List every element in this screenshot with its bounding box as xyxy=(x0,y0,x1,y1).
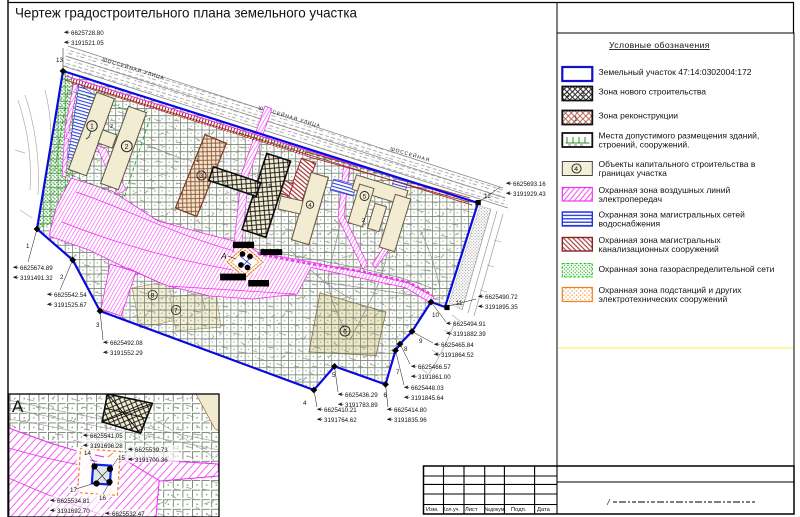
svg-text:1: 1 xyxy=(196,158,199,164)
svg-text:электропередач: электропередач xyxy=(599,194,663,204)
svg-text:1: 1 xyxy=(574,116,578,123)
svg-text:17: 17 xyxy=(70,487,77,494)
svg-text:16: 16 xyxy=(99,495,106,502)
svg-text:3191692.70: 3191692.70 xyxy=(57,508,90,515)
svg-text:6625494.91: 6625494.91 xyxy=(453,321,486,328)
svg-text:Условные обозначения: Условные обозначения xyxy=(609,40,710,50)
svg-text:Земельный участок 47:14:030200: Земельный участок 47:14:0302004:172 xyxy=(599,67,752,77)
svg-text:4: 4 xyxy=(308,203,311,209)
svg-text:3: 3 xyxy=(200,173,204,180)
svg-text:3191525.67: 3191525.67 xyxy=(54,302,87,309)
svg-text:Лист: Лист xyxy=(465,507,478,513)
svg-text:6625414.80: 6625414.80 xyxy=(394,407,427,414)
svg-text:3191845.64: 3191845.64 xyxy=(411,395,444,402)
svg-text:6625534.81: 6625534.81 xyxy=(57,498,90,505)
svg-text:2: 2 xyxy=(566,92,570,99)
svg-text:6625674.89: 6625674.89 xyxy=(20,265,53,272)
svg-text:10: 10 xyxy=(432,312,439,319)
svg-text:11: 11 xyxy=(456,300,463,307)
svg-text:2: 2 xyxy=(362,218,365,224)
svg-text:8: 8 xyxy=(151,293,155,300)
svg-text:2: 2 xyxy=(223,181,226,187)
svg-text:канализационных сооружений: канализационных сооружений xyxy=(599,244,719,254)
svg-text:А: А xyxy=(12,397,24,416)
svg-text:6625490.72: 6625490.72 xyxy=(485,294,518,301)
svg-text:3191764.62: 3191764.62 xyxy=(324,417,357,424)
svg-text:6625448.03: 6625448.03 xyxy=(411,385,444,392)
svg-text:12: 12 xyxy=(484,193,491,200)
svg-text:3191521.05: 3191521.05 xyxy=(71,40,104,47)
svg-text:строений, сооружений.: строений, сооружений. xyxy=(599,140,690,150)
svg-text:6625541.05: 6625541.05 xyxy=(90,433,123,440)
svg-text:3191696.28: 3191696.28 xyxy=(90,443,123,450)
svg-text:14: 14 xyxy=(84,450,91,457)
svg-text:6625542.54: 6625542.54 xyxy=(54,292,87,299)
svg-text:6: 6 xyxy=(384,392,388,399)
svg-text:3191864.52: 3191864.52 xyxy=(441,352,474,359)
svg-text:Изм.: Изм. xyxy=(426,507,439,513)
svg-text:№докум.: №докум. xyxy=(485,507,506,513)
svg-text:Дата: Дата xyxy=(537,507,551,513)
svg-text:7: 7 xyxy=(174,308,178,315)
svg-text:3191929.43: 3191929.43 xyxy=(513,191,546,198)
svg-text:4: 4 xyxy=(574,166,578,173)
svg-text:15: 15 xyxy=(118,455,125,462)
svg-text:6625436.29: 6625436.29 xyxy=(345,392,378,399)
svg-text:9: 9 xyxy=(419,338,423,345)
svg-text:Зона нового строительства: Зона нового строительства xyxy=(599,87,707,97)
svg-text:4: 4 xyxy=(303,400,307,407)
svg-text:2: 2 xyxy=(110,124,113,130)
svg-text:2: 2 xyxy=(60,274,64,281)
svg-text:Кол.уч.: Кол.уч. xyxy=(443,507,460,513)
svg-text:электротехнических сооружений: электротехнических сооружений xyxy=(599,294,728,304)
svg-text:Подп.: Подп. xyxy=(511,507,527,513)
svg-text:3: 3 xyxy=(581,91,585,98)
svg-text:6625410.21: 6625410.21 xyxy=(324,407,357,414)
svg-text:6625532.47: 6625532.47 xyxy=(112,511,145,517)
svg-text:1: 1 xyxy=(90,124,94,131)
svg-text:водоснабжения: водоснабжения xyxy=(599,219,661,229)
svg-text:6625693.16: 6625693.16 xyxy=(513,181,546,188)
svg-text:3: 3 xyxy=(268,184,271,190)
svg-text:6625539.73: 6625539.73 xyxy=(135,447,168,454)
svg-text:Зона реконструкции: Зона реконструкции xyxy=(599,111,679,121)
svg-text:6625728.80: 6625728.80 xyxy=(71,30,104,37)
svg-text:3191882.39: 3191882.39 xyxy=(453,331,486,338)
svg-text:6: 6 xyxy=(343,329,347,336)
svg-text:1: 1 xyxy=(26,243,30,250)
svg-text:А: А xyxy=(220,251,227,261)
svg-text:3191700.36: 3191700.36 xyxy=(135,457,168,464)
svg-text:8: 8 xyxy=(404,346,408,353)
svg-text:6625492.08: 6625492.08 xyxy=(110,340,143,347)
svg-text:границах участка: границах участка xyxy=(599,168,668,178)
svg-text:5: 5 xyxy=(332,372,336,379)
svg-text:Чертеж градостроительного план: Чертеж градостроительного плана земельно… xyxy=(15,6,357,21)
svg-text:3191491.32: 3191491.32 xyxy=(20,275,53,282)
svg-text:Охранная зона газораспределите: Охранная зона газораспределительной сети xyxy=(599,264,775,274)
svg-text:13: 13 xyxy=(56,57,63,64)
svg-text:3: 3 xyxy=(96,322,100,329)
svg-text:6625465.84: 6625465.84 xyxy=(441,342,474,349)
svg-text:3191861.00: 3191861.00 xyxy=(418,374,451,381)
svg-text:3191895.35: 3191895.35 xyxy=(485,304,518,311)
svg-text:7: 7 xyxy=(396,369,400,376)
svg-text:6625466.57: 6625466.57 xyxy=(418,364,451,371)
svg-text:3191552.29: 3191552.29 xyxy=(110,350,143,357)
svg-text:3191835.96: 3191835.96 xyxy=(394,417,427,424)
svg-text:5: 5 xyxy=(363,193,367,200)
svg-text:2: 2 xyxy=(125,144,129,151)
